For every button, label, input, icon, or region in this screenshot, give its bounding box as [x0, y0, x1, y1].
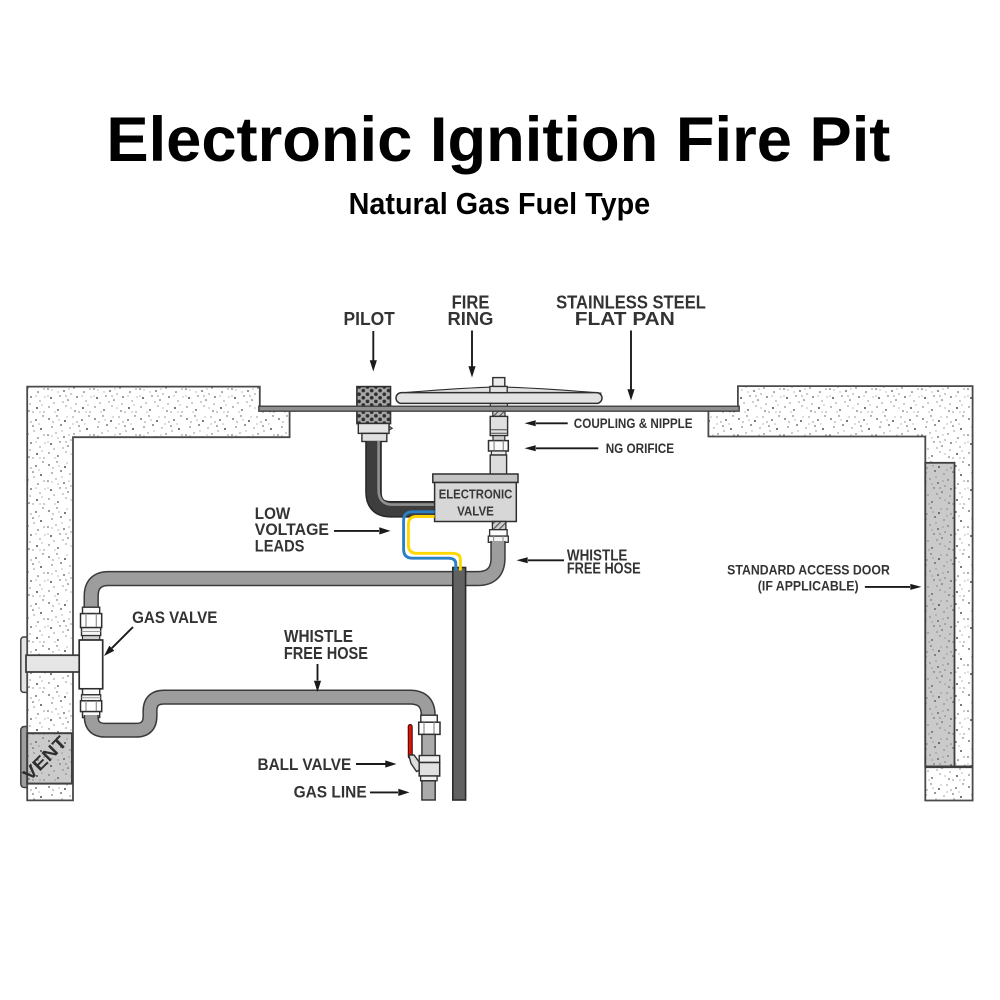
svg-text:LOW: LOW	[255, 505, 291, 523]
svg-text:FREE HOSE: FREE HOSE	[284, 643, 368, 663]
svg-text:(IF APPLICABLE): (IF APPLICABLE)	[758, 578, 859, 594]
svg-text:PILOT: PILOT	[344, 309, 395, 329]
svg-text:COUPLING & NIPPLE: COUPLING & NIPPLE	[574, 416, 693, 431]
svg-text:GAS LINE: GAS LINE	[294, 783, 367, 802]
svg-text:RING: RING	[448, 308, 494, 329]
svg-text:VOLTAGE: VOLTAGE	[255, 521, 329, 539]
svg-text:NG ORIFICE: NG ORIFICE	[606, 441, 674, 456]
svg-text:BALL VALVE: BALL VALVE	[258, 755, 352, 774]
svg-text:ELECTRONIC: ELECTRONIC	[439, 486, 513, 501]
svg-text:VALVE: VALVE	[457, 504, 494, 519]
svg-text:LEADS: LEADS	[255, 537, 305, 555]
svg-text:Electronic Ignition Fire Pit: Electronic Ignition Fire Pit	[106, 105, 890, 175]
svg-text:FLAT PAN: FLAT PAN	[575, 308, 675, 329]
svg-text:GAS VALVE: GAS VALVE	[132, 608, 217, 627]
svg-text:Natural Gas Fuel Type: Natural Gas Fuel Type	[349, 186, 651, 221]
svg-text:FREE HOSE: FREE HOSE	[567, 561, 641, 578]
svg-text:STANDARD ACCESS DOOR: STANDARD ACCESS DOOR	[727, 562, 890, 578]
